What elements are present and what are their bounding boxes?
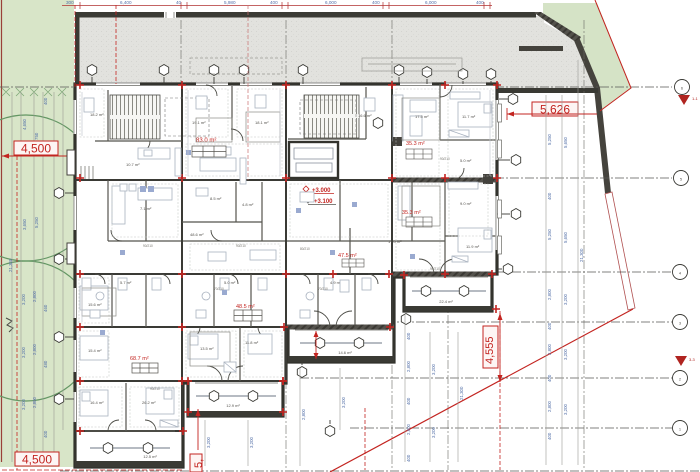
svg-text:22.4 m²: 22.4 m² [439, 299, 453, 304]
svg-text:400: 400 [43, 430, 48, 438]
svg-text:3,200: 3,200 [21, 293, 26, 305]
svg-text:48.5 m²: 48.5 m² [236, 304, 255, 310]
svg-text:400: 400 [547, 432, 552, 440]
svg-text:3-3: 3-3 [689, 357, 696, 362]
svg-text:5,650: 5,650 [563, 231, 568, 243]
svg-text:3,200: 3,200 [563, 348, 568, 360]
svg-text:16.6 m²: 16.6 m² [358, 113, 372, 118]
svg-text:2,800: 2,800 [32, 396, 37, 408]
svg-text:48.6 m²: 48.6 m² [190, 232, 204, 237]
svg-text:5.0 m²: 5.0 m² [460, 158, 472, 163]
svg-text:35.3 m²: 35.3 m² [402, 210, 421, 216]
svg-text:26.2 m²: 26.2 m² [142, 400, 156, 405]
svg-text:3,200: 3,200 [206, 436, 211, 448]
svg-text:3,200: 3,200 [21, 346, 26, 358]
svg-text:68.7 m²: 68.7 m² [130, 356, 149, 362]
svg-text:2,800: 2,800 [32, 343, 37, 355]
svg-text:90/210: 90/210 [143, 244, 153, 248]
svg-text:400: 400 [406, 397, 411, 405]
svg-text:21,300: 21,300 [579, 248, 584, 262]
svg-text:460: 460 [43, 304, 48, 312]
svg-text:4,650: 4,650 [22, 118, 27, 130]
svg-text:17.0 m²: 17.0 m² [388, 239, 402, 244]
svg-text:13.5 m²: 13.5 m² [200, 346, 214, 351]
svg-text:70/210: 70/210 [318, 287, 328, 291]
svg-text:3,200: 3,200 [249, 436, 254, 448]
svg-text:3,650: 3,650 [22, 218, 27, 230]
svg-text:90/210: 90/210 [430, 267, 440, 271]
svg-text:400: 400 [547, 192, 552, 200]
svg-text:4,500: 4,500 [21, 142, 51, 156]
svg-text:400: 400 [270, 0, 278, 5]
svg-text:5,250: 5,250 [547, 228, 552, 240]
svg-text:400: 400 [547, 374, 552, 382]
svg-text:4,555: 4,555 [484, 336, 496, 364]
svg-text:480: 480 [43, 360, 48, 368]
svg-text:21,300: 21,300 [8, 258, 13, 272]
svg-text:10.7 m²: 10.7 m² [126, 162, 140, 167]
svg-text:400: 400 [372, 0, 380, 5]
svg-text:2,800: 2,800 [547, 400, 552, 412]
svg-text:3,200: 3,200 [431, 363, 436, 375]
svg-text:5.0 m²: 5.0 m² [224, 280, 236, 285]
svg-text:15.6 m²: 15.6 m² [88, 302, 102, 307]
svg-text:47.5 m²: 47.5 m² [338, 253, 357, 259]
svg-text:6,000: 6,000 [425, 0, 437, 5]
svg-text:11.8 m²: 11.8 m² [245, 340, 259, 345]
svg-text:5.7 m²: 5.7 m² [120, 280, 132, 285]
svg-text:1-1: 1-1 [692, 96, 699, 101]
svg-text:4,500: 4,500 [22, 453, 52, 467]
svg-text:5,250: 5,250 [34, 216, 39, 228]
svg-text:8.5 m²: 8.5 m² [210, 196, 222, 201]
svg-text:12.5 m²: 12.5 m² [143, 454, 157, 459]
svg-text:40: 40 [176, 0, 182, 5]
svg-text:2,800: 2,800 [32, 290, 37, 302]
svg-text:7.1 m²: 7.1 m² [140, 206, 152, 211]
svg-text:2,800: 2,800 [301, 408, 306, 420]
svg-text:4.8 m²: 4.8 m² [242, 202, 254, 207]
svg-text:5,: 5, [193, 459, 205, 468]
svg-text:2,800: 2,800 [547, 288, 552, 300]
svg-text:400: 400 [547, 322, 552, 330]
svg-text:14.6 m²: 14.6 m² [338, 350, 352, 355]
svg-text:19.1 m²: 19.1 m² [192, 120, 206, 125]
svg-text:3,200: 3,200 [563, 293, 568, 305]
svg-text:15.4 m²: 15.4 m² [88, 348, 102, 353]
svg-text:16.4 m²: 16.4 m² [90, 400, 104, 405]
svg-text:35.3 m²: 35.3 m² [406, 141, 425, 147]
svg-text:6,000: 6,000 [325, 0, 337, 5]
svg-text:9.0 m²: 9.0 m² [460, 201, 472, 206]
svg-text:2,800: 2,800 [406, 423, 411, 435]
svg-text:400: 400 [476, 0, 484, 5]
svg-text:21,300: 21,300 [459, 386, 464, 400]
svg-text:18.2 m²: 18.2 m² [90, 112, 104, 117]
svg-text:90/210: 90/210 [236, 244, 246, 248]
svg-text:400: 400 [406, 332, 411, 340]
svg-text:11.7 m²: 11.7 m² [462, 114, 476, 119]
svg-text:18.1 m²: 18.1 m² [255, 120, 269, 125]
svg-text:2,800: 2,800 [406, 360, 411, 372]
svg-text:300: 300 [66, 0, 74, 5]
svg-text:5,650: 5,650 [563, 136, 568, 148]
svg-text:5,980: 5,980 [224, 0, 236, 5]
svg-text:750: 750 [34, 132, 39, 140]
svg-text:3,200: 3,200 [563, 403, 568, 415]
svg-text:400: 400 [406, 454, 411, 462]
svg-text:83.0 m²: 83.0 m² [196, 138, 216, 144]
svg-text:3,200: 3,200 [431, 426, 436, 438]
svg-text:5,250: 5,250 [547, 133, 552, 145]
svg-text:80/210: 80/210 [300, 247, 310, 251]
svg-text:11.9 m²: 11.9 m² [466, 244, 480, 249]
svg-text:90/210: 90/210 [150, 387, 160, 391]
svg-text:12.9 m²: 12.9 m² [226, 403, 240, 408]
svg-text:3,200: 3,200 [21, 398, 26, 410]
svg-text:90/210: 90/210 [440, 157, 450, 161]
svg-text:17.5 m²: 17.5 m² [415, 114, 429, 119]
svg-text:400: 400 [43, 97, 48, 105]
svg-text:6,400: 6,400 [120, 0, 132, 5]
svg-text:3,200: 3,200 [341, 396, 346, 408]
svg-text:2,800: 2,800 [547, 343, 552, 355]
